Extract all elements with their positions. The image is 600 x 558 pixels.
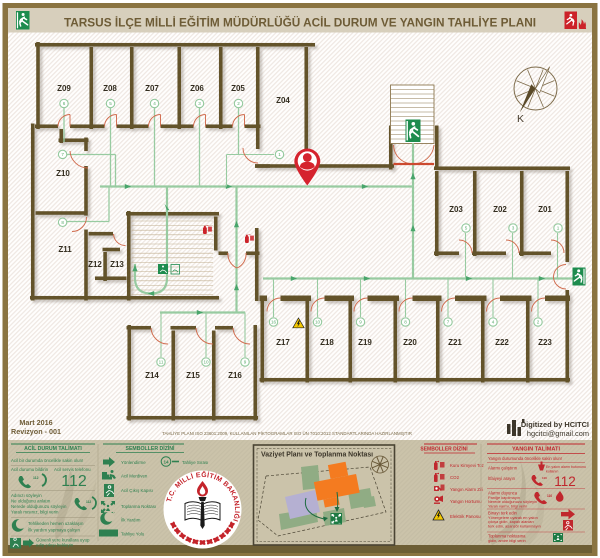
svg-text:Z02: Z02 [493,205,507,214]
svg-text:10: 10 [315,320,321,325]
svg-text:Z11: Z11 [58,245,72,254]
svg-text:3: 3 [198,101,201,106]
svg-text:Z07: Z07 [145,84,159,93]
svg-text:Yangın Hortumu: Yangın Hortumu [450,499,482,504]
svg-text:CO2: CO2 [450,475,460,480]
svg-text:Z03: Z03 [449,205,463,214]
svg-text:kullanın: kullanın [546,470,558,474]
svg-text:YANGIN TALİMATI: YANGIN TALİMATI [512,446,561,453]
svg-text:112: 112 [86,500,91,504]
svg-text:Yangın Alarm Zili: Yangın Alarm Zili [450,487,483,492]
svg-text:Yaralı mısınız, bilgi verin: Yaralı mısınız, bilgi verin [11,510,59,515]
svg-text:Z05: Z05 [231,84,245,93]
svg-text:En yakın alarm butonunu: En yakın alarm butonunu [546,465,586,469]
svg-text:SEMBOLLER DİZİNİ: SEMBOLLER DİZİNİ [420,446,468,453]
svg-text:Yönlendirme: Yönlendirme [121,460,146,465]
svg-text:TARSUS İLÇE MİLLİ EĞİTİM MÜDÜR: TARSUS İLÇE MİLLİ EĞİTİM MÜDÜRLÜĞÜ ACİL … [64,16,536,30]
svg-text:Mart 2016: Mart 2016 [19,418,52,427]
svg-text:Tahliye Sırası: Tahliye Sırası [182,460,208,465]
svg-text:8: 8 [61,220,64,225]
svg-text:İlk yardım yapmaya çalışın: İlk yardım yapmaya çalışın [28,528,81,533]
svg-text:5: 5 [109,101,112,106]
svg-text:Z17: Z17 [276,338,290,347]
svg-text:16: 16 [271,320,277,325]
svg-text:14: 14 [163,460,169,465]
svg-text:Z16: Z16 [228,371,242,380]
svg-text:Z09: Z09 [57,84,71,93]
svg-text:terk edin, asansör kullanmayın: terk edin, asansör kullanmayın [488,523,541,528]
svg-text:4: 4 [153,101,156,106]
svg-text:Elektrik Panosu: Elektrik Panosu [450,514,481,519]
svg-text:8: 8 [404,320,407,325]
svg-text:Z15: Z15 [186,371,200,380]
svg-text:Z20: Z20 [403,338,417,347]
svg-text:ACİL DURUM TALİMATI: ACİL DURUM TALİMATI [24,445,82,452]
svg-text:6: 6 [63,101,66,106]
svg-text:TAHLİYE PLANI ISO 23601:2009,: TAHLİYE PLANI ISO 23601:2009, KULLANILAN… [162,431,412,436]
svg-text:Adınızı söyleyin: Adınızı söyleyin [11,493,42,498]
svg-text:Digitized by HCITCI: Digitized by HCITCI [521,420,589,429]
svg-text:Ne olduğunu anlatın: Ne olduğunu anlatın [11,499,51,504]
svg-text:Z13: Z13 [110,260,124,269]
svg-text:Kuru Kimyevi Toz: Kuru Kimyevi Toz [450,463,484,468]
svg-text:Acil durumu bildirin: Acil durumu bildirin [11,467,49,472]
svg-text:7: 7 [61,152,64,157]
svg-text:9: 9 [359,320,362,325]
svg-text:Acil servis telefonu: Acil servis telefonu [54,467,91,472]
svg-text:112: 112 [554,474,576,489]
svg-text:Tahliye Yolu: Tahliye Yolu [121,532,145,537]
svg-text:Z12: Z12 [88,260,102,269]
svg-text:edip çıkışı bekleyin: edip çıkışı bekleyin [36,543,74,548]
svg-text:112: 112 [61,473,87,490]
svg-text:2: 2 [237,101,240,106]
svg-text:Z14: Z14 [145,371,159,380]
svg-text:Z19: Z19 [358,338,372,347]
svg-text:1: 1 [557,226,560,231]
svg-text:Z18: Z18 [320,338,334,347]
svg-text:5: 5 [465,226,468,231]
svg-text:112: 112 [33,476,39,480]
svg-text:Z01: Z01 [538,205,552,214]
svg-text:Z22: Z22 [495,338,509,347]
svg-text:3: 3 [512,226,515,231]
svg-text:Z10: Z10 [56,169,70,178]
svg-text:Z21: Z21 [448,338,462,347]
svg-text:Acil bir durumda öncelikle sak: Acil bir durumda öncelikle sakin olun! [11,458,83,463]
svg-text:2: 2 [537,320,540,325]
svg-text:İlk Yardım: İlk Yardım [121,518,141,523]
svg-text:10: 10 [203,360,209,365]
svg-text:7: 7 [447,320,450,325]
svg-text:110: 110 [542,476,547,480]
svg-text:Vaziyet Planı ve Toplanma Nokt: Vaziyet Planı ve Toplanma Noktası [261,452,373,459]
svg-text:SEMBOLLER DİZİNİ: SEMBOLLER DİZİNİ [126,445,176,452]
svg-text:110: 110 [547,494,552,498]
svg-text:1: 1 [278,152,281,157]
svg-text:11: 11 [159,360,164,365]
svg-text:Alarmı çalıştırın: Alarmı çalıştırın [488,466,518,471]
svg-text:Z06: Z06 [190,84,204,93]
svg-text:Revizyon - 001: Revizyon - 001 [11,427,61,436]
svg-text:K: K [517,113,524,125]
svg-text:gidin, amire bilgi verin: gidin, amire bilgi verin [488,538,526,543]
svg-text:Z08: Z08 [103,84,117,93]
svg-text:Acil Merdiven: Acil Merdiven [121,474,148,479]
svg-text:hgcitci@gmail.com: hgcitci@gmail.com [527,429,589,438]
svg-text:Z23: Z23 [538,338,552,347]
svg-text:4: 4 [492,320,495,325]
svg-text:Yangın durumunda öncelikle sak: Yangın durumunda öncelikle sakin olun! [488,456,562,461]
svg-text:9: 9 [244,360,247,365]
svg-text:Toplanma Noktası: Toplanma Noktası [121,504,156,509]
svg-text:İtfaiyeyi arayın: İtfaiyeyi arayın [488,476,516,481]
svg-text:Tehlikeden hemen uzaklaşın: Tehlikeden hemen uzaklaşın [28,521,84,526]
svg-text:Yaralı varmı, bilgi verin: Yaralı varmı, bilgi verin [488,503,527,508]
svg-text:Z04: Z04 [276,96,290,105]
svg-text:Acil Çıkış Kapısı: Acil Çıkış Kapısı [121,488,153,493]
svg-text:Nerede olduğunuzu söyleyin: Nerede olduğunuzu söyleyin [11,504,67,509]
